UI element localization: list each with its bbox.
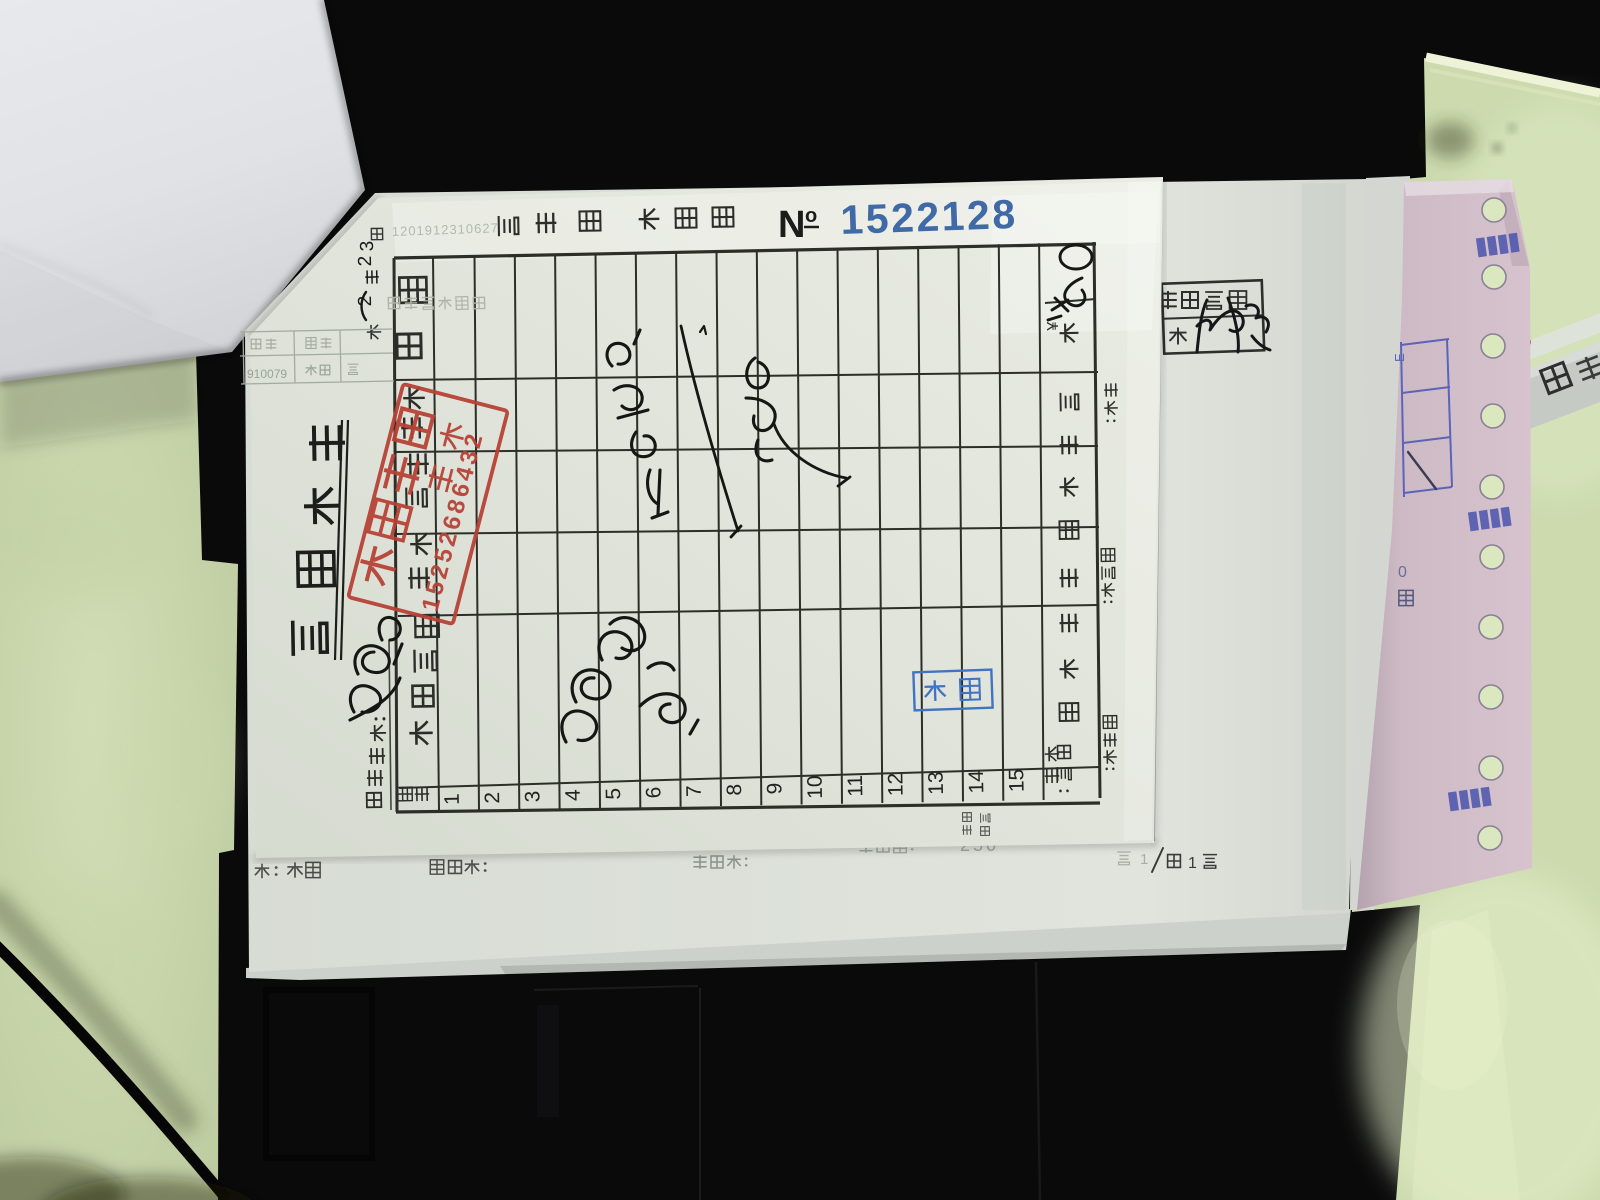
svg-text:1: 1	[441, 793, 464, 805]
svg-text:3: 3	[521, 790, 544, 802]
svg-text:9: 9	[763, 782, 786, 794]
svg-text:2: 2	[355, 256, 376, 267]
svg-text:11: 11	[844, 775, 867, 797]
svg-text:¥: ¥	[1045, 321, 1062, 331]
svg-text:12: 12	[884, 773, 907, 797]
svg-text:10: 10	[804, 775, 827, 799]
svg-text:1522128: 1522128	[840, 191, 1019, 243]
svg-text:E: E	[1392, 353, 1407, 362]
svg-text:7: 7	[683, 785, 706, 797]
svg-text:8: 8	[723, 784, 746, 796]
svg-text:1: 1	[1140, 851, 1148, 868]
svg-text:14: 14	[965, 770, 988, 794]
svg-text:3: 3	[357, 241, 378, 252]
svg-text:4: 4	[562, 789, 585, 801]
svg-text:o: o	[805, 205, 817, 227]
svg-text:0: 0	[1398, 564, 1407, 581]
svg-text:5: 5	[602, 788, 625, 800]
svg-text:2: 2	[481, 792, 504, 804]
svg-text:N: N	[778, 204, 805, 246]
svg-text:6: 6	[642, 786, 665, 798]
svg-text:13: 13	[925, 771, 948, 795]
svg-text:15: 15	[1005, 769, 1028, 793]
svg-text:1: 1	[1188, 855, 1197, 872]
svg-text:910079: 910079	[247, 367, 287, 381]
svg-text:2: 2	[355, 296, 376, 307]
